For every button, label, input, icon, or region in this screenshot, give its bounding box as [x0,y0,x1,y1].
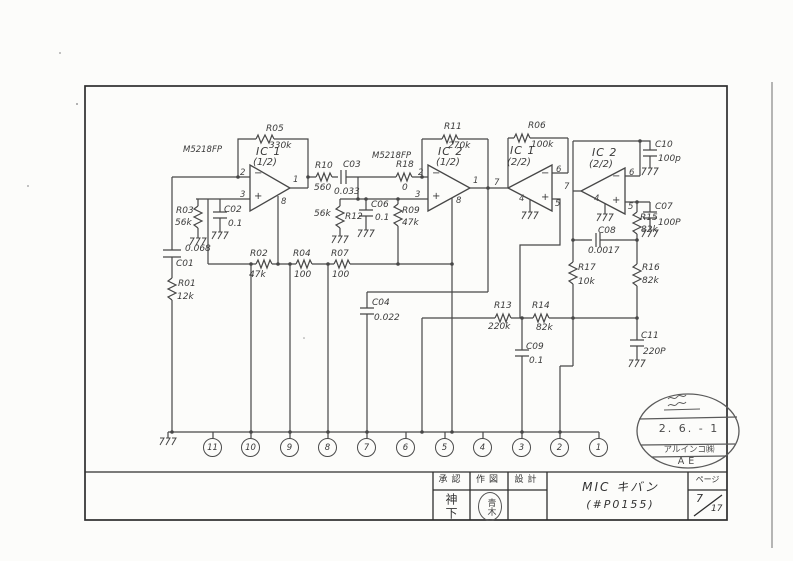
c10-value: 100p [658,155,681,164]
c04-value: 0.022 [374,314,400,323]
r07-ref: R07 [331,250,349,259]
ic1-a-pin2: 2 [240,169,245,178]
connector-pin-1: 1 [589,438,608,457]
ic2-b-pin1: 1 [473,177,478,186]
stamp-illegible-scribble [664,395,700,410]
ic2-d-plus-sign: + [612,196,620,206]
c11-ref: C11 [641,332,659,341]
r07-value: 100 [332,271,349,280]
c02-ref: C02 [224,206,242,215]
ic1-c-half: (2/2) [507,158,531,168]
r12-ref: R12 [345,213,363,222]
ic2-d-half: (2/2) [589,160,613,170]
r02-ref: R02 [250,250,268,259]
r16-value: 82k [642,277,659,286]
c02-value: 0.1 [228,220,242,229]
drafter-name: 青木 [486,498,495,516]
page-label: ページ [689,476,726,484]
ic2-b-pin8: 8 [456,197,461,206]
page-number: 7 [696,493,703,504]
connector-pin-10: 10 [241,438,260,457]
connector-pin-3: 3 [512,438,531,457]
connector-pin-4: 4 [473,438,492,457]
r06-ref: R06 [528,122,546,131]
r04-value: 100 [294,271,311,280]
r10-ref: R10 [315,162,333,171]
title-block-design-header: 設計 [509,476,546,485]
schematic-drawing [0,0,793,561]
ic1-a-half: (1/2) [253,158,277,168]
title-block-approval-header: 承認 [434,476,469,485]
ic1-c-pin6: 6 [556,166,561,175]
wires [163,138,657,438]
r15-ref: R15 [640,214,658,223]
ic1-c-plus-sign: + [541,193,549,203]
r14-value: 82k [536,324,553,333]
ic2-b-pin3: 3 [415,191,420,200]
connector-pin-9: 9 [280,438,299,457]
ic2-d-name: IC 2 [592,147,617,158]
r06-value: 100k [531,141,553,150]
ic1-a-plus-sign: + [254,192,262,202]
approver-signature: 神下 [445,493,457,521]
r01-ref: R01 [178,280,196,289]
ic1-a-pin3: 3 [240,191,245,200]
r14-ref: R14 [532,302,550,311]
r01-value: 12k [177,293,194,302]
r09-ref: R09 [402,207,420,216]
ic1-a-minus-sign: − [254,169,262,179]
title-block-drawn-header: 作図 [471,476,507,485]
r11-ref: R11 [444,123,462,132]
r03-value: 56k [175,219,192,228]
ic2-d-minus-sign: − [612,172,620,182]
ic2-b-plus-sign: + [432,192,440,202]
r03-ref: R03 [176,207,194,216]
connector-pin-8: 8 [318,438,337,457]
page-total: 17 [711,505,722,514]
stamp-code: AE [664,457,712,467]
c09-value: 0.1 [529,357,543,366]
ic2-d-pin6: 6 [629,169,634,178]
ic1-c-pin7: 7 [494,179,499,188]
drafter-hanko-stamp: 青木 [478,492,502,521]
r18-ref: R18 [396,161,414,170]
c11-value: 220P [643,348,666,357]
r18-value: 0 [402,184,408,193]
r17-ref: R17 [578,264,596,273]
ic1-a-pin1: 1 [293,176,298,185]
connector-pin-5: 5 [435,438,454,457]
ic1-c-pin5: 5 [555,200,560,209]
c04-ref: C04 [372,299,390,308]
r13-ref: R13 [494,302,512,311]
scan-noise [27,52,305,339]
c01-ref: C01 [176,260,194,269]
r05-value: 330k [269,142,291,151]
r13-value: 220k [488,323,510,332]
r02-value: 47k [249,271,266,280]
ic1-a-pin8: 8 [281,198,286,207]
r11-value: 270k [448,142,470,151]
c08-ref: C08 [598,227,616,236]
stamp-company-name: アルインコ㈱ [645,446,733,455]
ic2-b-minus-sign: − [432,169,440,179]
c07-value: 100P [658,219,681,228]
r09-value: 47k [402,219,419,228]
ic2-b-half: (1/2) [436,158,460,168]
c01-value: 0.068 [185,245,211,254]
r04-ref: R04 [293,250,311,259]
c06-value: 0.1 [375,214,389,223]
drawing-number: (#P0155) [558,499,683,510]
c10-ref: C10 [655,141,673,150]
ic2-d-pin4: 4 [594,195,599,204]
r16-ref: R16 [642,264,660,273]
c03-value: 0.033 [334,188,360,197]
ic2-d-pin7: 7 [564,183,569,192]
ic2-b-pin2: 2 [418,169,423,178]
r17-value: 10k [578,278,595,287]
connector-pin-7: 7 [357,438,376,457]
c09-ref: C09 [526,343,544,352]
opamp-type-label-left: M5218FP [183,146,222,155]
schematic-sheet: M5218FP IC 1 (1/2) 2 3 1 8 − + M5218FP I… [0,0,793,561]
ic2-d-pin5: 5 [628,203,633,212]
drawing-title: MIC キバン [558,481,683,493]
ic1-c-minus-sign: − [541,169,549,179]
c03-ref: C03 [343,161,361,170]
c08-value: 0.0017 [588,247,620,256]
r10-value: 560 [314,184,331,193]
stamp-date: 2. 6. - 1 [650,423,728,434]
r12-value: 56k [314,210,331,219]
c07-ref: C07 [655,203,673,212]
c06-ref: C06 [371,201,389,210]
connector-pin-2: 2 [550,438,569,457]
r15-value: 82k [641,226,658,235]
connector-pin-6: 6 [396,438,415,457]
connector-pin-11: 11 [203,438,222,457]
ic1-c-pin4: 4 [519,195,524,204]
r05-ref: R05 [266,125,284,134]
